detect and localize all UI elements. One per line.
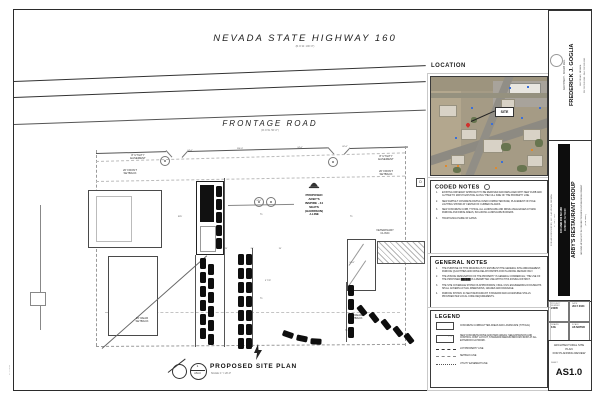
building-roof [527, 155, 543, 167]
location-header: LOCATION [431, 63, 466, 69]
parked-car-symbol [238, 310, 244, 321]
dimension-label: R25' [178, 216, 182, 218]
location-aerial-map: SITE [430, 76, 548, 176]
parked-car-symbol [216, 186, 222, 197]
note-text: THE ZONING DESIGNATION OF THE PROPERTY I… [442, 276, 543, 282]
note-item: 4.TRASH ENCLOSURE W/ GATES. [436, 218, 543, 221]
tree-symbol [328, 157, 338, 167]
note-item: 3.THE SITE COVERAGE SHOWN IS APPROXIMATE… [436, 285, 543, 291]
tree-symbol [160, 156, 170, 166]
legend-swatch [436, 335, 456, 343]
parked-car-symbol [216, 199, 222, 210]
legend-swatch [436, 364, 456, 365]
legend-item: SETBACK LINE [436, 355, 543, 358]
note-number: 3. [436, 285, 440, 291]
dimension-label: 9' TYP [265, 280, 271, 282]
legend-item-label: NEW CONCRETE DRIVE AND PARK AREAS; SEE E… [460, 335, 543, 344]
map-dot-blue [539, 107, 541, 109]
plot-stamp: 07.17.2024 [9, 352, 11, 388]
legend-item: NEW CONCRETE DRIVE AND PARK AREAS; SEE E… [436, 335, 543, 344]
legend-item: CONCRETE CURB/GUTTER AREAS AND LANDSCAPE… [436, 322, 543, 330]
architect-stamp-icon [550, 54, 563, 67]
legend-swatch [436, 322, 456, 330]
sheet-number: AS1.0 [549, 367, 589, 378]
parked-car-symbol [246, 268, 252, 279]
sheet-label: SHEET [551, 362, 558, 364]
legend-item: LOT/PROPERTY LINE [436, 348, 543, 351]
project-name: ARBY'S RESTAURANT GROUP [571, 144, 577, 296]
map-dot-orange [531, 149, 533, 151]
parked-car-symbol [208, 306, 214, 317]
general-notes-panel: GENERAL NOTES 1.THE PURPOSE OF THIS DRAW… [430, 256, 548, 308]
project-address2: PAHRUMP, NV 89048 [565, 144, 567, 296]
tree-symbol [266, 197, 276, 207]
parked-car-symbol [200, 272, 206, 283]
parked-car-symbol [208, 292, 214, 303]
legend-item: UTILITY EASEMENT LINE [436, 363, 543, 366]
plan-label: 8' UTILITY EASEMENT [378, 155, 393, 162]
note-number: 4. [436, 218, 440, 221]
drawing-sheet: NEVADA STATE HIGHWAY 160 (R.O.W. 100'-0"… [0, 0, 600, 400]
map-dot-orange [495, 167, 497, 169]
parked-car-symbol [348, 285, 354, 296]
parked-car-symbol [200, 328, 206, 339]
dimension-label: 62'-0" [342, 146, 347, 148]
map-dot-blue [521, 117, 523, 119]
map-dot-blue [509, 87, 511, 89]
parked-car-symbol [310, 338, 321, 345]
parked-car-symbol [238, 338, 244, 349]
note-number: 2. [436, 276, 440, 282]
plan-label: 20' FRONT SETBACK [123, 169, 137, 176]
parked-car-symbol [246, 254, 252, 265]
building-roof [439, 105, 457, 117]
map-dot-blue [501, 161, 503, 163]
note-item: 2.THE ZONING DESIGNATION OF THE PROPERTY… [436, 276, 543, 282]
legend-swatch [436, 356, 456, 357]
plan-label: 20' REAR SETBACK [135, 317, 148, 324]
plan-label: 8' UTILITY EASEMENT [130, 154, 145, 161]
traffic-arrows: ↑↓ [350, 214, 352, 218]
parked-car-symbol [282, 330, 294, 339]
legend-swatch-dash [436, 356, 456, 357]
project-subtitle2: (SITE ONLY) [585, 144, 587, 296]
coded-notes-list: 1.EXISTING DRIVEWAY APPROACH TO BE REMOV… [431, 192, 547, 220]
building-roof [461, 129, 477, 140]
plan-label: 20' FRONT SETBACK [379, 170, 393, 177]
vegetation-patch [517, 165, 527, 172]
legend-item-label: LOT/PROPERTY LINE [460, 348, 483, 351]
building-roof [451, 155, 465, 165]
parked-car-symbol [216, 238, 222, 249]
note-item: 3.NEW CONCRETE CURB, TYPICAL ALL LANDSCA… [436, 209, 543, 215]
legend-swatch-rect2 [436, 335, 454, 343]
legend-item-label: CONCRETE CURB/GUTTER AREAS AND LANDSCAPE… [460, 325, 530, 328]
parked-car-symbol [392, 325, 404, 337]
parked-car-symbol [246, 282, 252, 293]
map-dot-orange [445, 165, 447, 167]
map-dot-blue [527, 86, 529, 88]
parked-car-symbol [348, 299, 354, 310]
parked-car-symbol [200, 314, 206, 325]
titleblock-fields: PROJECT NUMBER24005DATEJULY 2024DRAWNFJG… [548, 300, 590, 341]
bubble-sheet-ref: AS1.0 [189, 372, 206, 375]
parked-car-symbol [200, 258, 206, 269]
coded-notes-title: CODED NOTES [435, 184, 480, 190]
traffic-arrows: ↑↓ [260, 296, 262, 300]
note-item: 1.EXISTING DRIVEWAY APPROACH TO BE REMOV… [436, 192, 543, 198]
dimension-label: 19' [279, 248, 282, 250]
note-item: 1.THE PURPOSE OF THIS DRAWING IS TO ESTA… [436, 268, 543, 274]
titleblock-field: SCALEAS NOTED [569, 322, 590, 341]
traffic-arrows: ↑↓ [260, 212, 262, 216]
note-text: PARKING SHOWN: 44 SEAT RESTAURANT; STAND… [442, 293, 543, 299]
parked-car-symbol [403, 332, 415, 344]
note-item: 4.PARKING SHOWN: 44 SEAT RESTAURANT; STA… [436, 293, 543, 299]
dimension-label: 24'-0" [187, 150, 192, 152]
sheet-title-line: FOR PLANNING REVIEW [549, 352, 589, 356]
field-value: 24005 [551, 307, 567, 310]
parked-car-symbol [368, 311, 380, 323]
parked-car-symbol [246, 324, 252, 335]
project-issue-date: 17 JULY, 2024 [554, 146, 556, 294]
parked-car-symbol [200, 286, 206, 297]
note-item: 2.NEW ASPHALT CONCRETE PAVING OVER COMPA… [436, 201, 543, 207]
coded-notes-header: CODED NOTES [431, 181, 547, 192]
architect-address: LAS VEGAS, NEVADA [580, 14, 582, 136]
field-value: FJG [551, 326, 567, 329]
map-dot-blue [491, 123, 493, 125]
parked-car-symbol [246, 310, 252, 321]
note-text: THE PURPOSE OF THIS DRAWING IS TO ESTABL… [442, 268, 543, 274]
parked-car-symbol [348, 327, 354, 338]
plan-scale: SCALE: 1" = 20'-0" [211, 372, 231, 375]
note-text: THE SITE COVERAGE SHOWN IS APPROXIMATE; … [442, 285, 543, 291]
legend-header: LEGEND [431, 311, 547, 322]
legend-item-label: UTILITY EASEMENT LINE [460, 363, 488, 366]
parked-car-symbol [208, 320, 214, 331]
map-dot-blue [455, 137, 457, 139]
legend-panel: LEGEND CONCRETE CURB/GUTTER AREAS AND LA… [430, 310, 548, 388]
titleblock-field: DATEJULY 2024 [569, 301, 590, 322]
architect-title: ARCHITECT · NCARB REG. [563, 14, 566, 136]
parked-car-symbol [296, 334, 308, 342]
field-value: AS NOTED [572, 326, 588, 329]
parked-car-symbol [238, 296, 244, 307]
plan-title: PROPOSED SITE PLAN [210, 363, 297, 370]
note-text: NEW CONCRETE CURB, TYPICAL ALL LANDSCAPE… [442, 209, 543, 215]
project-for-line: FOR: ARG RESOURCES, LLC · LAS VEGAS, NEV… [551, 146, 553, 294]
note-text: NEW ASPHALT CONCRETE PAVING OVER COMPACT… [442, 201, 543, 207]
architect-name: FREDERICK J. GOGLIA [569, 14, 575, 136]
legend-swatch-dashdot [436, 349, 456, 350]
vegetation-patch [501, 143, 511, 151]
parked-car-symbol [238, 254, 244, 265]
note-text: EXISTING DRIVEWAY APPROACH TO BE REMOVED… [442, 192, 543, 198]
parked-car-symbol [200, 300, 206, 311]
coded-notes-panel: CODED NOTES 1.EXISTING DRIVEWAY APPROACH… [430, 180, 548, 254]
legend-swatch-dot [436, 364, 456, 365]
bubble-number: 1 [190, 364, 205, 368]
note-number: 4. [436, 293, 440, 299]
field-value: JULY 2024 [572, 305, 588, 308]
parked-car-symbol [216, 225, 222, 236]
legend-swatch [436, 349, 456, 350]
note-number: 2. [436, 201, 440, 207]
parked-car-symbol [348, 313, 354, 324]
map-dot-blue [471, 107, 473, 109]
keynote-symbol-icon [484, 184, 490, 190]
tree-symbol [254, 197, 264, 207]
legend-swatch-rect [436, 322, 454, 330]
parked-car-symbol [238, 282, 244, 293]
general-notes-list: 1.THE PURPOSE OF THIS DRAWING IS TO ESTA… [431, 268, 547, 299]
parked-car-symbol [238, 268, 244, 279]
titleblock-field: DRAWNFJG [548, 322, 569, 341]
frontage-road-strip [431, 93, 547, 98]
note-text: TRASH ENCLOSURE W/ GATES. [442, 218, 477, 221]
parked-car-symbol [208, 334, 214, 345]
parked-car-symbol [216, 212, 222, 223]
note-number: 3. [436, 209, 440, 215]
dimension-label: 26' [251, 248, 254, 250]
parked-car-symbol [380, 318, 392, 330]
sheet-title: ARCHITECTURAL SITEPLANFOR PLANNING REVIE… [549, 344, 589, 356]
architect-phone: PH 702.555.0160 · FAX 702.555.0161 [584, 14, 586, 136]
legend-list: CONCRETE CURB/GUTTER AREAS AND LANDSCAPE… [431, 322, 547, 366]
parked-car-symbol [208, 278, 214, 289]
building-roof [483, 139, 503, 153]
plan-label: VETERINARY CLINIC [376, 229, 394, 236]
site-callout-label: SITE [495, 107, 514, 117]
parked-car-symbol [246, 296, 252, 307]
parked-car-symbol [238, 324, 244, 335]
vegetation-patch [453, 167, 461, 173]
traffic-arrows: ↑↓ [345, 328, 347, 332]
general-notes-header: GENERAL NOTES [431, 257, 547, 268]
dimension-label: 24'-0" [349, 262, 354, 264]
project-address1: 100 AND 200 NV-160 [560, 144, 563, 296]
north-arrow-icon [252, 344, 264, 361]
parked-car-symbol [208, 264, 214, 275]
aerial-map-layer [431, 77, 547, 175]
legend-item-label: SETBACK LINE [460, 355, 476, 358]
dimension-label: 110'-0" [237, 148, 243, 150]
map-dot-orange [457, 165, 459, 167]
note-number: 1. [436, 192, 440, 198]
vegetation-patch [535, 139, 543, 147]
titleblock-field: PROJECT NUMBER24005 [548, 301, 569, 322]
dimension-label: 24'-0" [297, 147, 302, 149]
note-number: 1. [436, 268, 440, 274]
project-subtitle1: GROUND UP FACILITY IN CONJUNCTION W/ EXI… [581, 144, 583, 296]
dimension-label: 19' [225, 248, 228, 250]
